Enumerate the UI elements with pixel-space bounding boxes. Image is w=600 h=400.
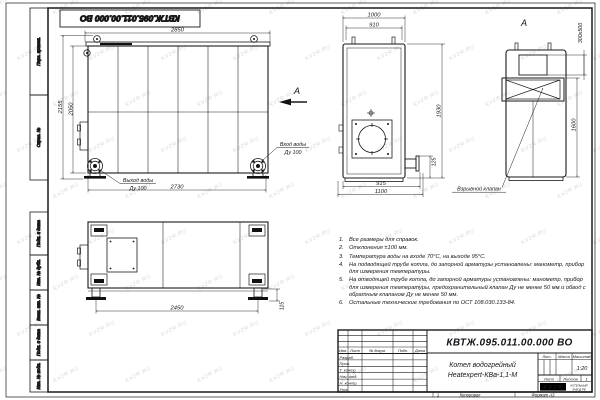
front-dim-height-inner: 2050 — [69, 102, 75, 117]
logo-caption-line1: КОТЕЛЬНЫЙ — [571, 384, 588, 388]
corner-pads — [91, 225, 265, 285]
frame-label-podp-data-1: Подп. и дата — [36, 219, 41, 247]
logo-caption-line2: ЗАВОД РФ — [572, 387, 587, 391]
note-number: 1. — [336, 237, 349, 244]
frame-label-perv-primen: Перв. примен. — [36, 37, 41, 66]
bottom-dimensions — [96, 289, 280, 314]
mass-label: Масса — [558, 354, 571, 359]
note-item: 1. Все размеры для справок. — [336, 237, 590, 244]
note-text: На отводящей трубе котла, до запорной ар… — [349, 277, 590, 299]
note-item: 2. Отклонения ±100 мм. — [336, 245, 590, 252]
side-dim-top-inner: 910 — [369, 22, 379, 28]
view-a: А 300х500 1600 — [452, 18, 587, 193]
view-direction-arrow — [279, 99, 307, 106]
bottom-dim-foot: 115 — [280, 302, 286, 310]
sight-glass — [367, 109, 375, 117]
scale-label: Масштаб — [573, 354, 592, 359]
footer-number: 1 — [437, 392, 439, 397]
kvzr-logo-text: KVZR — [543, 385, 562, 391]
outlet-label-line1: Выход воды — [123, 178, 153, 184]
footer-strip: 1 Копировал Формат А3 — [433, 392, 555, 397]
col-sign: Подп. — [398, 349, 408, 353]
outlet-label-line2: Ду 100 — [128, 186, 146, 192]
explosion-valve-label: Взрывной клапан — [457, 186, 501, 193]
sheets-value: 1 — [585, 376, 587, 381]
role-nachotd: Нач. отд. — [340, 374, 358, 379]
note-text: Отклонения ±100 мм. — [349, 245, 590, 252]
note-item: 5. На отводящей трубе котла, до запорной… — [336, 277, 590, 299]
sheets-label: Листов — [562, 376, 578, 381]
title-designation: КВТЖ.095.011.00.000 ВО — [446, 338, 572, 349]
technical-notes: 1. Все размеры для справок. 2. Отклонени… — [336, 237, 590, 309]
inlet-flange — [247, 159, 269, 179]
product-name-line2: Heatexpert-КВа-1,1-М — [448, 372, 518, 379]
frame-label-inv-podl: Инв. № подл. — [36, 363, 41, 390]
explosion-valve — [502, 78, 564, 101]
drawing-linework: Перв. примен. Справ. № Подп. и дата Инв.… — [0, 0, 600, 400]
side-pipe-stub — [405, 156, 419, 171]
inlet-label-line2: Ду 100 — [283, 150, 301, 156]
footer-copied-label: Копировал — [460, 392, 481, 397]
note-number: 6. — [336, 300, 349, 307]
lit-label: Лит. — [541, 354, 551, 359]
col-doc: № докум. — [369, 349, 386, 353]
col-izm: Изм. — [339, 349, 347, 353]
inlet-label-line1: Вход воды — [280, 142, 306, 148]
kvzr-logo: KVZR КОТЕЛЬНЫЙ ЗАВОД РФ — [540, 383, 588, 391]
note-item: 3. Температура воды на входе 70°С, на вы… — [336, 254, 590, 261]
front-dim-bottom: 2730 — [170, 184, 185, 190]
col-date: Дата — [414, 349, 425, 353]
front-view: 2850 2730 2155 2050 Выход воды Ду 100 Вх… — [58, 28, 309, 193]
top-designation-text: КВТЖ.095.011.00.000 ВО — [80, 14, 180, 24]
view-direction-label: А — [293, 86, 300, 96]
note-number: 3. — [336, 254, 349, 261]
side-view: 1000 910 1930 125 915 1100 — [338, 12, 445, 197]
sheet-label: Лист — [543, 376, 555, 381]
note-number: 4. — [336, 262, 349, 277]
side-dimensions — [338, 16, 445, 198]
side-dim-stub: 125 — [432, 158, 438, 167]
top-designation-stamp: КВТЖ.095.011.00.000 ВО — [60, 10, 200, 27]
side-dim-bottom-inner: 915 — [376, 181, 386, 187]
front-dimensions — [61, 31, 271, 193]
front-dim-height-outer: 2155 — [58, 100, 64, 115]
drawing-sheet: KVZR.RUKVZR.RUKVZR.RUKVZR.RUKVZR.RUKVZR.… — [0, 0, 600, 400]
outlet-flange — [84, 159, 106, 179]
col-list: Лист — [349, 349, 360, 353]
note-item: 6. Остальные технические требования по О… — [336, 300, 590, 307]
frame-label-podp-data-2: Подп. и дата — [36, 328, 41, 356]
frame-label-sprav: Справ. № — [36, 127, 41, 147]
side-dim-top-outer: 1000 — [368, 12, 382, 18]
side-dim-bottom-outer: 1100 — [375, 189, 388, 195]
front-dim-top: 2850 — [170, 28, 185, 34]
note-text: На подводящей трубе котла, до запорной а… — [349, 262, 590, 277]
role-razrab: Разраб. — [340, 355, 354, 360]
side-dim-height: 1930 — [437, 104, 443, 118]
bottom-view: 2450 115 — [78, 222, 286, 314]
role-prov: Пров. — [340, 361, 351, 366]
view-a-dim-height: 1600 — [572, 118, 578, 132]
note-number: 5. — [336, 277, 349, 299]
front-side-bracket — [78, 122, 89, 150]
note-text: Все размеры для справок. — [349, 237, 590, 244]
view-a-dim-flue: 300х500 — [578, 23, 584, 43]
note-item: 4. На подводящей трубе котла, до запорно… — [336, 262, 590, 277]
front-panel-grid — [88, 46, 268, 173]
frame-label-inv-dubl: Инв. № дубл. — [36, 259, 41, 285]
bottom-dim-width: 2450 — [170, 305, 185, 311]
burner-door — [352, 120, 392, 158]
note-text: Остальные технические требования по ОСТ … — [349, 300, 590, 307]
bottom-side-bracket — [78, 245, 89, 269]
footer-format-label: Формат А3 — [532, 392, 556, 397]
role-utv: Утв. — [340, 387, 349, 392]
title-block: КВТЖ.095.011.00.000 ВО Котел водогрейный… — [338, 330, 592, 392]
scale-value: 1:20 — [577, 366, 589, 372]
product-name-line1: Котел водогрейный — [449, 361, 516, 369]
view-a-label: А — [520, 18, 527, 28]
note-text: Температура воды на входе 70°С, на выход… — [349, 254, 590, 261]
frame-label-vzam-inv: Взам. инв. № — [36, 294, 41, 321]
note-number: 2. — [336, 245, 349, 252]
role-tkontr: Т. контр. — [340, 368, 357, 373]
role-nkontr: Н. контр. — [340, 380, 358, 385]
view-a-dimensions — [547, 50, 587, 177]
support-feet — [86, 288, 268, 300]
bottom-hatch — [107, 238, 137, 272]
